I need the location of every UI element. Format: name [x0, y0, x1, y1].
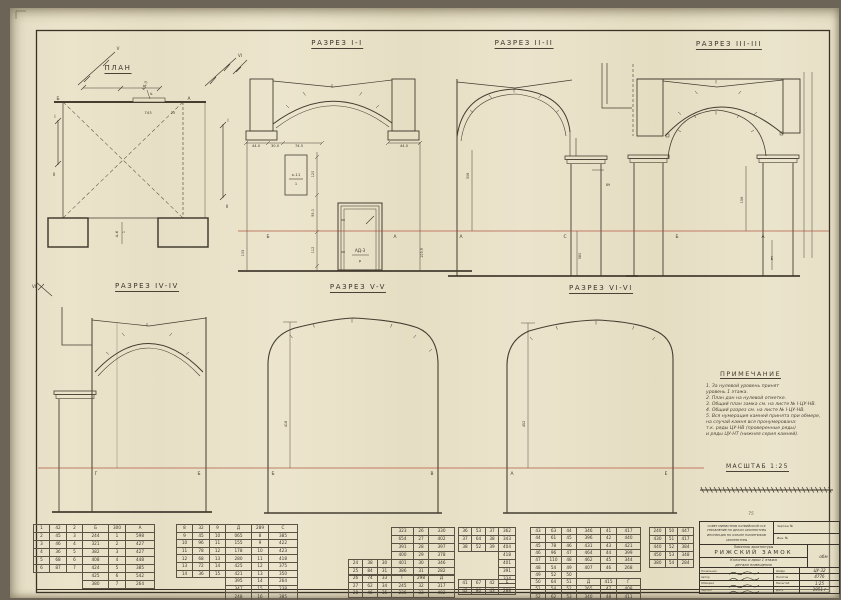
- table-cell: 3: [67, 533, 83, 541]
- table-cell: 87: [50, 565, 67, 573]
- table-cell: 38: [459, 544, 472, 552]
- table-cell: 48: [531, 564, 546, 571]
- section-vi-vi-drawing: [503, 320, 677, 513]
- section-2-title: РАЗРЕЗ II-II: [495, 39, 554, 49]
- table-cell: 321: [83, 541, 109, 549]
- table-row: 46964746444399: [531, 549, 641, 556]
- table-row: 40029378: [349, 552, 455, 560]
- info-value: 4776: [800, 574, 839, 579]
- table-cell: 68: [193, 555, 210, 563]
- table-cell: 9: [210, 525, 226, 533]
- info-row: Дата1951 г: [774, 587, 839, 593]
- table-row: 401: [459, 560, 516, 568]
- table-cell: 404: [499, 544, 516, 552]
- org-line: АРХИТЕКТУРЫ: [700, 538, 773, 543]
- plan-dim-25: 25: [171, 111, 175, 115]
- table-cell: 64: [546, 579, 562, 586]
- cut-marker-vi-top: VI: [238, 53, 242, 58]
- table-row: 3807264: [34, 581, 155, 589]
- table-cell: 300: [109, 525, 126, 533]
- table-row: 471104846245344: [531, 557, 641, 564]
- table-cell: 424: [83, 565, 109, 573]
- table-row: 28463523633402: [349, 590, 455, 598]
- table-cell: 397: [429, 544, 455, 552]
- table-cell: [210, 585, 226, 593]
- table-cell: 4: [67, 541, 83, 549]
- table-row: 1096111559422: [177, 540, 298, 548]
- table-cell: 3: [34, 541, 50, 549]
- stamp-cell: обм: [807, 545, 839, 568]
- table-cell: 427: [126, 541, 155, 549]
- table-cell: 9: [177, 532, 193, 540]
- table-row: 385239404: [459, 544, 516, 552]
- table-cell: [210, 593, 226, 600]
- s6-axis-a: А: [510, 471, 513, 477]
- table-row: 52625334048411: [531, 593, 641, 600]
- section-v-v-drawing: [264, 318, 442, 513]
- table-cell: 30: [414, 560, 429, 568]
- table-cell: 78: [193, 547, 210, 555]
- table-cell: 27: [349, 582, 363, 590]
- s1-axis-b: Б: [266, 234, 269, 240]
- table-cell: 411: [617, 593, 641, 600]
- table-cell: 15: [252, 585, 269, 593]
- table-cell: 240: [650, 528, 666, 536]
- table-cell: 5: [109, 565, 126, 573]
- table-cell: Б: [499, 580, 516, 588]
- notes-block: ПРИМЕЧАНИЕ 1. За нулевой уровень принят …: [706, 361, 838, 438]
- table-cell: 6: [34, 565, 50, 573]
- table-row: 4256542: [34, 573, 155, 581]
- table-cell: 344: [617, 557, 641, 564]
- table-row: 43634434641417: [531, 528, 641, 535]
- s1-detail-k11-den: 1: [295, 182, 297, 186]
- table-cell: 26: [414, 528, 429, 536]
- table-cell: 62: [546, 593, 562, 600]
- s1-detail-k11: к-11: [292, 172, 301, 177]
- table-cell: 45: [562, 535, 577, 542]
- table-cell: 47: [531, 557, 546, 564]
- table-cell: 298: [414, 575, 429, 583]
- table-cell: 11: [177, 547, 193, 555]
- table-cell: 13: [210, 555, 226, 563]
- table-cell: 375: [269, 562, 298, 570]
- table-cell: 280: [226, 555, 252, 563]
- s2-dim-580: 580: [578, 253, 582, 259]
- table-cell: 44: [531, 535, 546, 542]
- s1-door-mark-den: р: [359, 258, 362, 263]
- organization-name: СОВЕТ МИНИСТРОВ ЛАТВИЙСКОЙ ССРУПРАВЛЕНИЕ…: [700, 522, 774, 545]
- table-cell: Д: [226, 525, 252, 533]
- table-cell: 391: [392, 544, 414, 552]
- s1-axis-a: А: [393, 234, 396, 240]
- table-cell: [50, 573, 67, 581]
- table-cell: 14: [210, 562, 226, 570]
- table-cell: 96: [546, 549, 562, 556]
- table-cell: 448: [126, 557, 155, 565]
- table-cell: [459, 552, 472, 560]
- table-cell: 7: [109, 581, 126, 589]
- table-cell: 380: [650, 560, 666, 568]
- table-row: 65427402: [349, 536, 455, 544]
- table-cell: 430: [650, 536, 666, 544]
- table-row: 32326330: [349, 528, 455, 536]
- s1-dim-44-left: 44.0: [252, 144, 261, 148]
- table-cell: 384: [678, 544, 694, 552]
- section-6-title: РАЗРЕЗ VI-VI: [569, 284, 633, 294]
- table-cell: 28: [349, 590, 363, 598]
- table-cell: 385: [269, 532, 298, 540]
- table-cell: 396: [577, 535, 601, 542]
- table-cell: 54: [546, 564, 562, 571]
- table-cell: 348: [678, 552, 694, 560]
- table-cell: 52: [562, 586, 577, 593]
- s1-door-mark: АД-3: [355, 248, 366, 253]
- table-cell: [177, 593, 193, 600]
- table-cell: 64: [472, 536, 486, 544]
- table-cell: [177, 585, 193, 593]
- table-cell: 178: [226, 547, 252, 555]
- table-cell: 421: [617, 542, 641, 549]
- table-cell: 52: [666, 544, 678, 552]
- table-cell: 36: [50, 549, 67, 557]
- table-cell: 340: [577, 593, 601, 600]
- signature-label: Обмерил: [700, 581, 722, 585]
- cut-marker-i-left: I: [54, 114, 55, 119]
- table-cell: 46: [363, 590, 378, 598]
- table-cell: 422: [269, 540, 298, 548]
- table-cell: 425: [226, 562, 252, 570]
- drawing-sheet: БА74325АД-3рА-61VVIIIIIIIVI44.030.074.54…: [0, 0, 841, 600]
- table-cell: 43: [486, 587, 499, 595]
- table-cell: 74: [363, 575, 378, 583]
- table-cell: 38: [363, 560, 378, 568]
- table-cell: 065: [226, 532, 252, 540]
- table-cell: 48: [601, 593, 617, 600]
- s5-dim-418: 418: [284, 421, 288, 427]
- s5-axis-b: Б: [271, 471, 274, 477]
- s1-dim-95: 95.0: [311, 209, 315, 217]
- table-cell: 245: [392, 582, 414, 590]
- table-cell: 284: [678, 560, 694, 568]
- table-cell: 53: [562, 593, 577, 600]
- table-cell: 15: [210, 570, 226, 578]
- table-cell: 49: [562, 564, 577, 571]
- table-cell: 13: [252, 570, 269, 578]
- table-cell: [193, 578, 210, 586]
- table-cell: 236: [392, 590, 414, 598]
- table-cell: [617, 571, 641, 578]
- table-row: 365337362: [459, 528, 516, 536]
- table-cell: 42: [486, 580, 499, 588]
- table-row: 39514264: [177, 578, 298, 586]
- table-cell: [67, 581, 83, 589]
- table-cell: 391: [499, 568, 516, 576]
- table-row: 391: [459, 568, 516, 576]
- table-cell: 63: [546, 528, 562, 535]
- stone-dimension-table-7: 4363443464141744614539642440457846431434…: [530, 527, 641, 600]
- table-cell: 385: [126, 565, 155, 573]
- table-cell: 51: [531, 586, 546, 593]
- table-cell: 385: [269, 593, 298, 600]
- table-cell: [459, 568, 472, 576]
- table-row: 45784643143421: [531, 542, 641, 549]
- table-row: 34643212427: [34, 541, 155, 549]
- table-cell: 2: [109, 541, 126, 549]
- table-cell: А: [126, 525, 155, 533]
- table-cell: Д: [577, 579, 601, 586]
- table-cell: 36: [459, 528, 472, 536]
- table-cell: 45: [193, 532, 210, 540]
- s5-axis-v: В: [430, 471, 433, 477]
- table-cell: 464: [577, 549, 601, 556]
- table-cell: [67, 573, 83, 581]
- object-name: РИЖСКИЙ ЗАМОК: [700, 550, 807, 557]
- table-row: 428043288: [459, 587, 516, 595]
- table-cell: [193, 585, 210, 593]
- table-cell: 52: [546, 571, 562, 578]
- table-cell: 423: [269, 547, 298, 555]
- table-cell: 6: [109, 573, 126, 581]
- table-cell: [378, 536, 392, 544]
- pencil-note: 75: [748, 511, 754, 517]
- notes-lines: 1. За нулевой уровень принят уровень 1 э…: [706, 384, 838, 438]
- title-block: СОВЕТ МИНИСТРОВ ЛАТВИЙСКОЙ ССРУПРАВЛЕНИЕ…: [699, 521, 840, 594]
- notes-title: ПРИМЕЧАНИЕ: [720, 370, 781, 379]
- plan-dim-743: 743: [144, 110, 152, 115]
- table-cell: [34, 581, 50, 589]
- table-cell: 10: [252, 547, 269, 555]
- table-cell: 654: [392, 536, 414, 544]
- table-cell: 28: [414, 544, 429, 552]
- table-cell: 1: [34, 525, 50, 533]
- table-row: 38054284: [650, 560, 694, 568]
- table-cell: [50, 581, 67, 589]
- table-cell: 32: [193, 525, 210, 533]
- table-cell: 52: [472, 544, 486, 552]
- table-cell: 43: [531, 528, 546, 535]
- s2-dim-89: 89: [606, 183, 610, 187]
- table-cell: С: [269, 525, 298, 533]
- table-cell: 401: [392, 560, 414, 568]
- table-cell: 402: [429, 590, 455, 598]
- table-cell: [349, 552, 363, 560]
- table-cell: 408: [617, 586, 641, 593]
- table-cell: 462: [577, 557, 601, 564]
- section-4-title: РАЗРЕЗ IV-IV: [115, 282, 179, 292]
- table-cell: 11: [210, 540, 226, 548]
- table-cell: 72: [193, 562, 210, 570]
- table-cell: 46: [562, 542, 577, 549]
- s1-dim-1039: 103.9: [420, 248, 424, 258]
- table-row: 13721442512375: [177, 562, 298, 570]
- table-cell: 26: [349, 575, 363, 583]
- table-cell: 317: [429, 582, 455, 590]
- table-cell: 29: [414, 552, 429, 560]
- table-cell: 244: [83, 533, 109, 541]
- table-cell: 61: [546, 535, 562, 542]
- table-cell: 2: [67, 525, 83, 533]
- table-cell: [349, 528, 363, 536]
- info-value: 1:25: [800, 581, 839, 586]
- s2-axis-c: С: [563, 234, 566, 240]
- table-cell: 53: [472, 528, 486, 536]
- registration-row: Чертеж №: [774, 522, 839, 534]
- table-row: 34715238: [177, 585, 298, 593]
- table-cell: 323: [392, 528, 414, 536]
- plan-corner-b: Б: [56, 96, 59, 102]
- table-row: 45053348: [650, 552, 694, 560]
- table-cell: 238: [269, 585, 298, 593]
- cut-marker-ii-right: II: [226, 204, 228, 209]
- table-cell: 346: [577, 528, 601, 535]
- stone-dimension-table-2: 8329Д289С9451006583851096111559422117812…: [176, 524, 298, 600]
- table-row: 11781217810423: [177, 547, 298, 555]
- section-ii-ii-drawing: [448, 63, 638, 276]
- table-cell: 13: [177, 562, 193, 570]
- table-cell: 350: [269, 570, 298, 578]
- table-cell: 11: [252, 555, 269, 563]
- table-row: 43051417: [650, 536, 694, 544]
- table-cell: [363, 544, 378, 552]
- table-cell: 41: [459, 580, 472, 588]
- table-cell: 14: [252, 578, 269, 586]
- table-cell: 415: [601, 579, 617, 586]
- signature: [722, 589, 766, 595]
- table-cell: 407: [577, 564, 601, 571]
- table-cell: 80: [472, 587, 486, 595]
- table-cell: 24: [349, 560, 363, 568]
- info-value: ЦУ-32: [800, 568, 839, 573]
- table-cell: 68: [50, 557, 67, 565]
- table-cell: [459, 560, 472, 568]
- table-row: 44614539642440: [531, 535, 641, 542]
- table-cell: Г: [617, 579, 641, 586]
- table-cell: 35: [378, 590, 392, 598]
- table-cell: 417: [678, 536, 694, 544]
- plan-drawing: [36, 52, 236, 296]
- info-label: Негатив: [774, 574, 800, 579]
- table-cell: 47: [601, 586, 617, 593]
- table-cell: 44: [562, 528, 577, 535]
- table-cell: 49: [531, 571, 546, 578]
- table-cell: 155: [226, 540, 252, 548]
- table-cell: 264: [126, 581, 155, 589]
- table-cell: 400: [392, 552, 414, 560]
- section-5-title: РАЗРЕЗ V-V: [330, 283, 386, 293]
- table-cell: 265: [577, 586, 601, 593]
- table-cell: 542: [126, 573, 155, 581]
- table-row: 43653823427: [34, 549, 155, 557]
- table-cell: 14: [177, 570, 193, 578]
- section-iii-iii-drawing: [626, 64, 812, 276]
- scale-label: МАСШТАБ 1:25: [726, 463, 789, 472]
- table-cell: 5: [34, 557, 50, 565]
- s6-dim-452: 452: [522, 421, 526, 427]
- table-row: 27623424532317: [349, 582, 455, 590]
- table-row: 68774245385: [34, 565, 155, 573]
- plan-corner-a: А: [187, 96, 190, 102]
- table-row: 48544940746268: [531, 564, 641, 571]
- plan-opening-mark: А-6: [114, 230, 119, 237]
- registration-numbers: Чертеж №Инв. №: [774, 522, 839, 545]
- plan-door-mark: АД-3: [141, 80, 149, 91]
- table-cell: 431: [577, 542, 601, 549]
- table-cell: 50: [531, 579, 546, 586]
- s1-dim-112: 112: [311, 247, 315, 253]
- table-cell: 67: [472, 580, 486, 588]
- stone-dimension-table-3: 3232633065427402391283974002937824383040…: [348, 527, 455, 576]
- table-row: 14361542113350: [177, 570, 298, 578]
- table-cell: 399: [617, 549, 641, 556]
- table-cell: 343: [499, 536, 516, 544]
- table-cell: 42: [601, 535, 617, 542]
- table-cell: 46: [531, 549, 546, 556]
- table-cell: [378, 544, 392, 552]
- table-cell: 418: [269, 555, 298, 563]
- table-cell: 12: [252, 562, 269, 570]
- table-cell: 78: [546, 542, 562, 549]
- s3-dim-156: 156: [740, 197, 744, 203]
- table-cell: 38: [486, 536, 499, 544]
- table-cell: [363, 536, 378, 544]
- table-cell: 46: [50, 541, 67, 549]
- table-cell: 425: [83, 573, 109, 581]
- table-cell: 380: [83, 581, 109, 589]
- table-row: 267433Г298Д: [349, 575, 455, 583]
- table-cell: [378, 552, 392, 560]
- table-row: 416742Б: [459, 580, 516, 588]
- s6-axis-e: Е: [665, 471, 668, 477]
- table-cell: 53: [666, 552, 678, 560]
- s4-axis-b: Б: [197, 471, 200, 477]
- table-cell: [34, 573, 50, 581]
- note-line: и ряды ЦУ-НТ (нижняя серия камней).: [706, 432, 838, 438]
- table-cell: 42: [50, 525, 67, 533]
- table-cell: 52: [531, 593, 546, 600]
- table-cell: 33: [378, 575, 392, 583]
- plan-title: ПЛАН: [105, 64, 132, 74]
- table-cell: 46: [601, 564, 617, 571]
- table-cell: 427: [126, 549, 155, 557]
- table-row: 24050447: [650, 528, 694, 536]
- table-cell: [349, 536, 363, 544]
- table-cell: 8: [252, 532, 269, 540]
- table-cell: 408: [83, 557, 109, 565]
- table-cell: 347: [226, 585, 252, 593]
- registration-row: Инв. №: [774, 534, 839, 546]
- stone-dimension-table-8: 2405044743051417440523844505334838054284: [649, 527, 694, 568]
- table-cell: 440: [617, 535, 641, 542]
- scale-bar: [700, 487, 833, 493]
- table-row: 495250: [531, 571, 641, 578]
- table-cell: 33: [414, 590, 429, 598]
- table-cell: 42: [459, 587, 472, 595]
- s4-axis-g: Г: [95, 471, 98, 477]
- table-row: 12681328011418: [177, 555, 298, 563]
- table-cell: 418: [499, 552, 516, 560]
- signature-label: Начальник: [700, 569, 722, 573]
- table-cell: 330: [429, 528, 455, 536]
- table-row: 44052384: [650, 544, 694, 552]
- table-cell: [193, 593, 210, 600]
- table-cell: [210, 578, 226, 586]
- table-cell: [363, 552, 378, 560]
- table-cell: 10: [177, 540, 193, 548]
- cut-marker-i-right: I: [227, 118, 228, 123]
- table-cell: 417: [617, 528, 641, 535]
- table-cell: 4: [34, 549, 50, 557]
